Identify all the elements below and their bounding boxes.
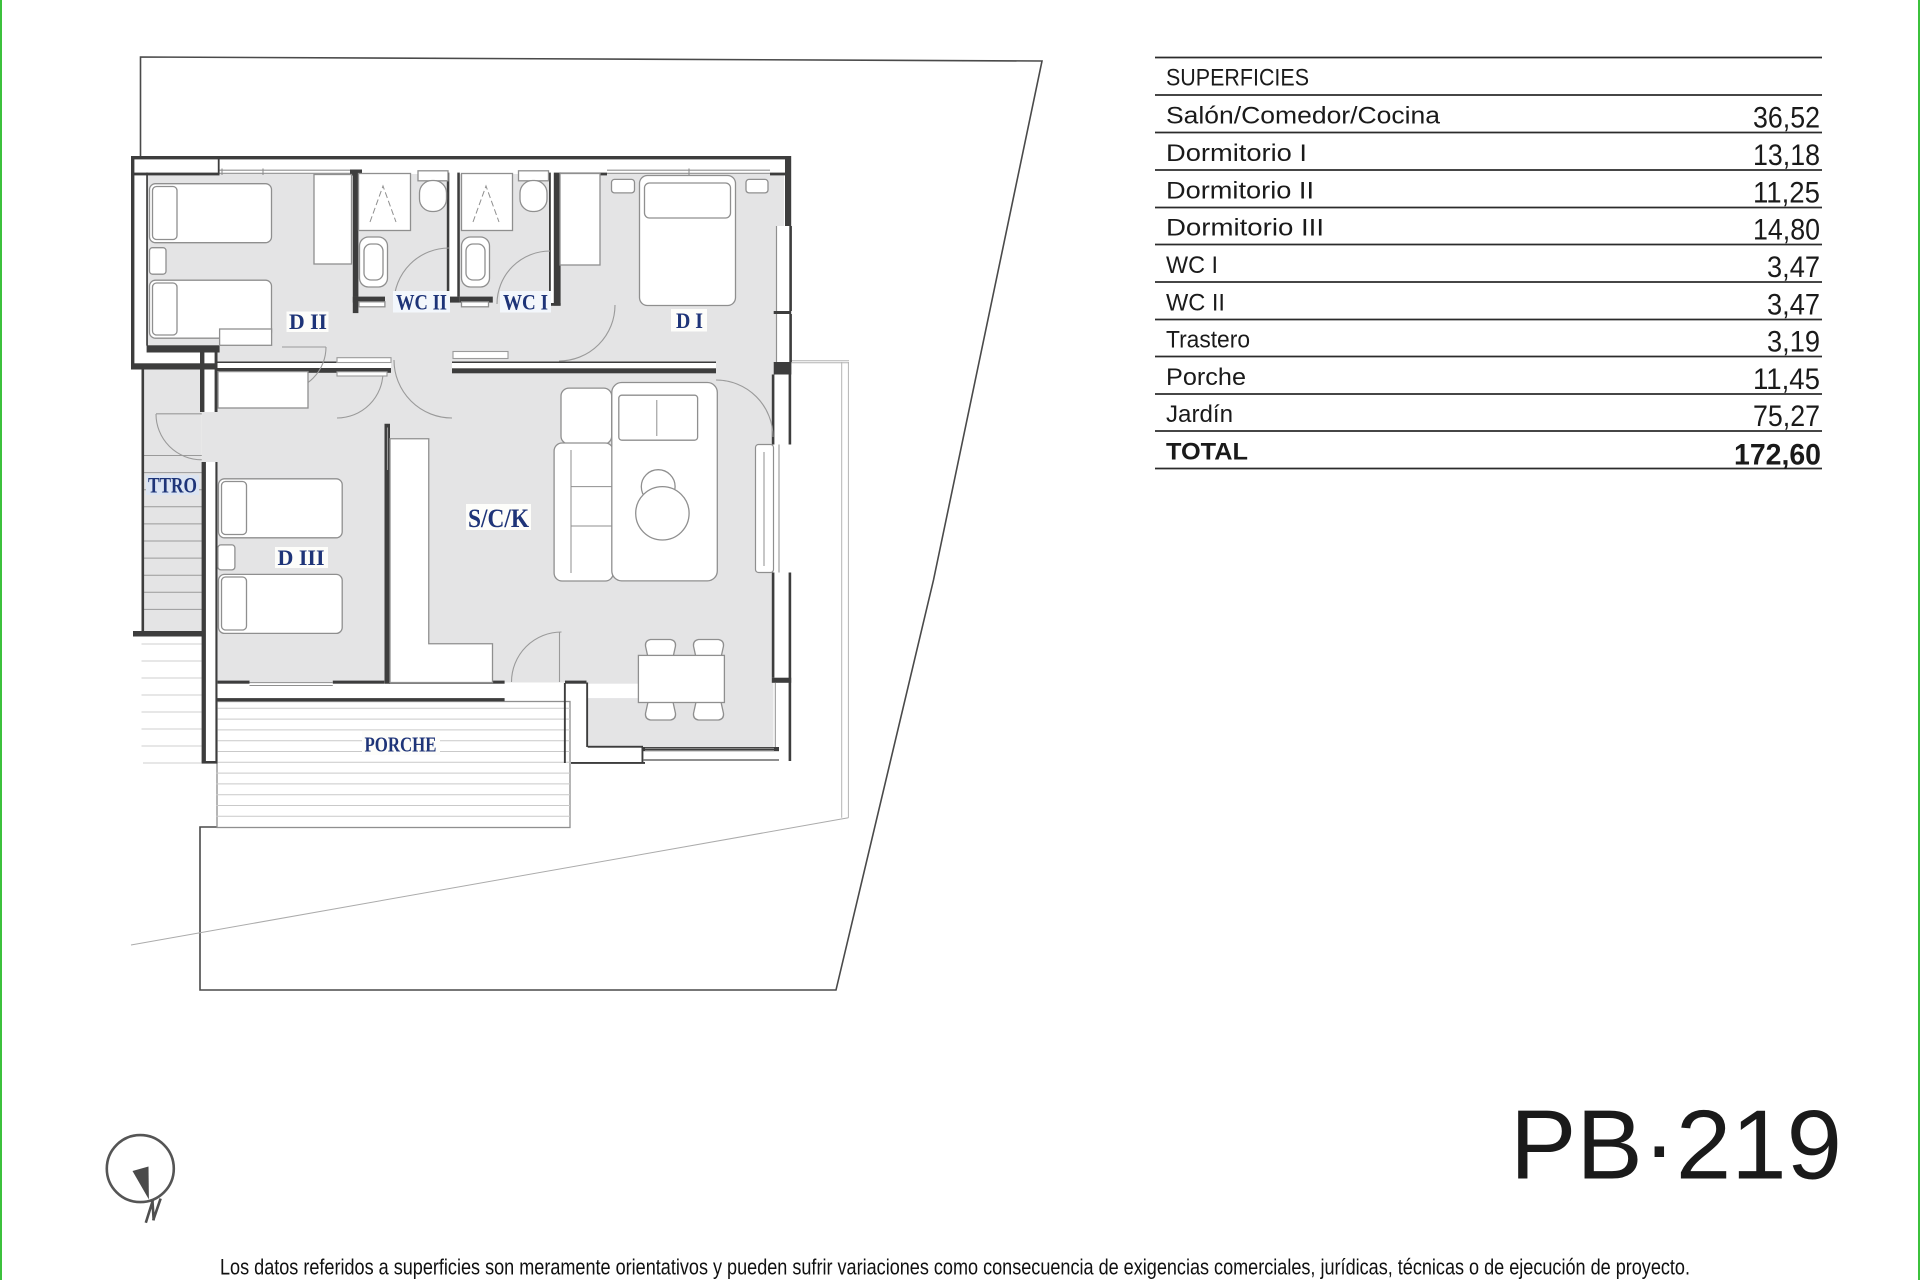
svg-text:D I: D I [676, 308, 703, 333]
svg-text:Salón/Comedor/Cocina: Salón/Comedor/Cocina [1166, 102, 1441, 129]
svg-text:WC I: WC I [1166, 252, 1218, 279]
svg-text:3,19: 3,19 [1767, 325, 1820, 358]
svg-text:3,47: 3,47 [1767, 251, 1820, 284]
svg-text:3,47: 3,47 [1767, 288, 1820, 321]
svg-text:14,80: 14,80 [1753, 213, 1820, 246]
svg-text:SUPERFICIES: SUPERFICIES [1166, 65, 1309, 92]
svg-text:Trastero: Trastero [1166, 326, 1250, 353]
svg-text:PORCHE: PORCHE [365, 733, 437, 757]
svg-text:11,25: 11,25 [1753, 176, 1820, 209]
svg-text:S/C/K: S/C/K [468, 503, 529, 533]
svg-text:Jardín: Jardín [1166, 401, 1233, 428]
svg-text:13,18: 13,18 [1753, 139, 1820, 172]
svg-text:WC II: WC II [396, 290, 447, 315]
svg-text:D II: D II [289, 309, 327, 334]
svg-text:11,45: 11,45 [1753, 363, 1820, 396]
svg-text:Dormitorio II: Dormitorio II [1166, 177, 1314, 204]
svg-text:WC I: WC I [503, 290, 548, 315]
svg-text:PB·219: PB·219 [1510, 1090, 1842, 1200]
svg-text:Los datos referidos a superfic: Los datos referidos a superficies son me… [220, 1255, 1690, 1280]
svg-text:75,27: 75,27 [1753, 400, 1820, 433]
svg-text:36,52: 36,52 [1753, 101, 1820, 134]
svg-text:TTRO: TTRO [148, 473, 197, 498]
svg-text:Dormitorio I: Dormitorio I [1166, 140, 1307, 167]
svg-text:TOTAL: TOTAL [1166, 438, 1248, 465]
svg-text:WC II: WC II [1166, 289, 1225, 316]
svg-text:Dormitorio III: Dormitorio III [1166, 214, 1324, 241]
svg-text:Porche: Porche [1166, 364, 1246, 391]
svg-text:172,60: 172,60 [1734, 439, 1821, 472]
svg-text:D III: D III [278, 545, 325, 570]
